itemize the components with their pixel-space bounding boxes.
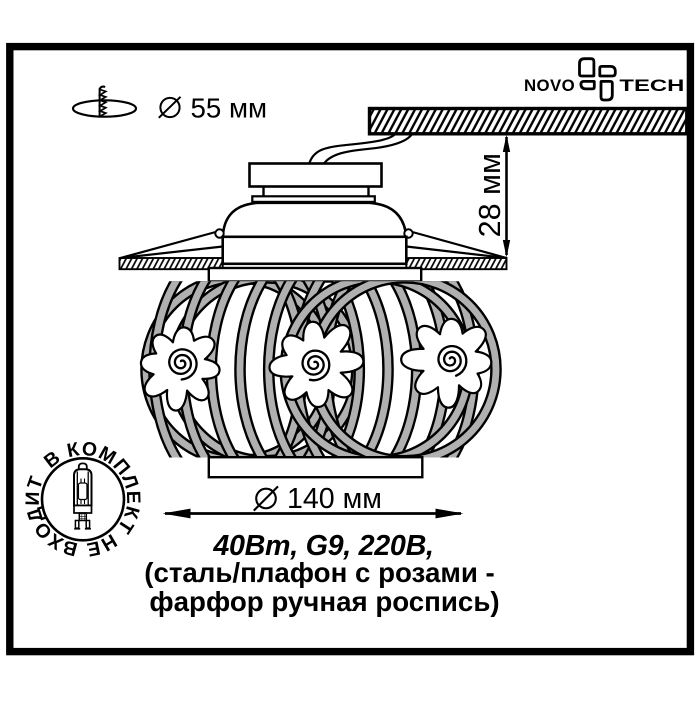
svg-text:140 мм: 140 мм [287,483,382,515]
svg-text:28 мм: 28 мм [473,153,507,237]
svg-text:фарфор ручная роспись): фарфор ручная роспись) [149,586,499,617]
svg-text:TECH: TECH [619,77,684,96]
svg-text:55 мм: 55 мм [191,93,268,124]
svg-text:NOVO: NOVO [524,76,575,95]
svg-text:(сталь/плафон с розами -: (сталь/плафон с розами - [144,557,495,588]
